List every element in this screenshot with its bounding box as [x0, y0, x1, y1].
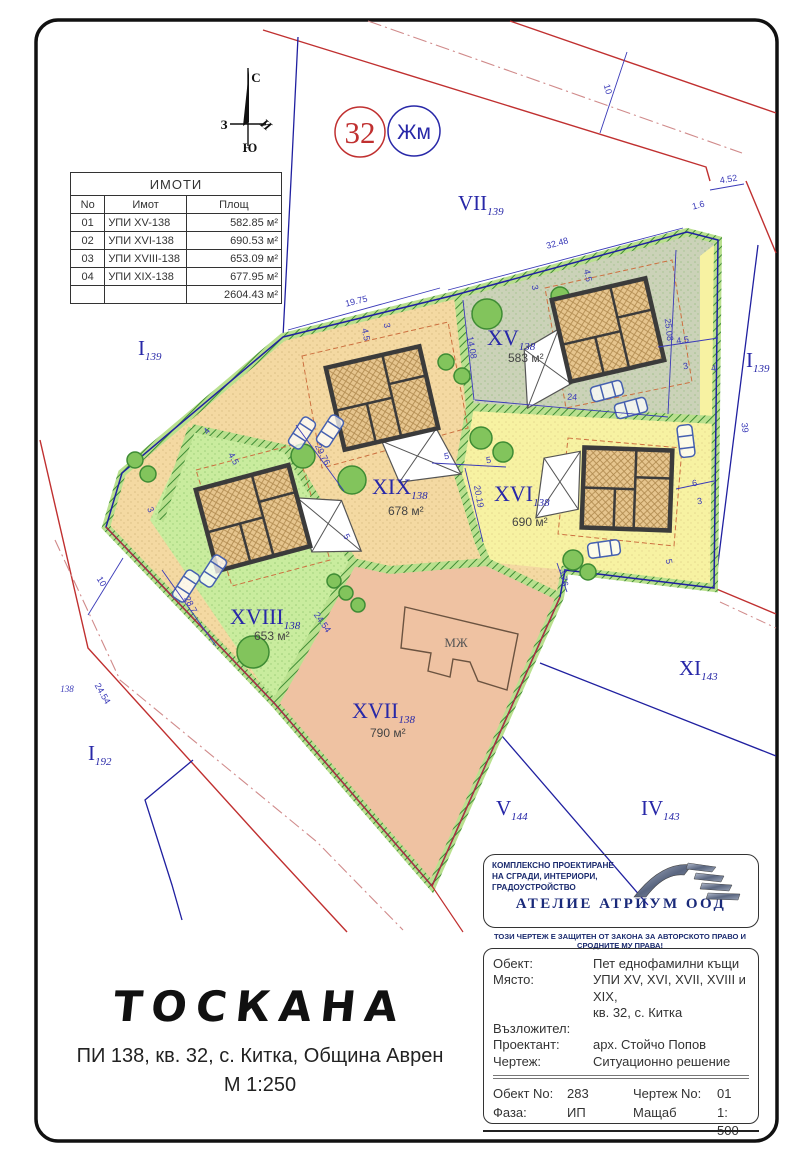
- compass-west-label: З: [221, 117, 228, 132]
- imoti-cell: УПИ XV-138: [105, 214, 186, 232]
- imoti-cell: 01: [71, 214, 105, 232]
- dimension-label: 10: [95, 575, 109, 589]
- compass-needle-icon: [243, 70, 249, 126]
- field-value: арх. Стойчо Попов: [593, 1037, 749, 1053]
- field-value: Пет еднофамилни къщи: [593, 956, 749, 972]
- company-logo-icon: [630, 859, 750, 901]
- field-label: Място:: [493, 972, 593, 1021]
- project-title: ТОСКАНА: [72, 982, 447, 1031]
- signature-line: [483, 1130, 759, 1132]
- imoti-header: Имот: [105, 196, 186, 214]
- parcel-area-label: 678 м²: [388, 504, 424, 518]
- imoti-header: Площ: [186, 196, 281, 214]
- dimension-label: 24.54: [93, 681, 113, 706]
- dimension-label: 4.52: [719, 173, 738, 186]
- footer-left: ТОСКАНА ПИ 138, кв. 32, с. Китка, Община…: [75, 982, 445, 1097]
- imoti-row: 03УПИ XVIII-138653.09 м²: [71, 250, 282, 268]
- zone-label: Жм: [397, 121, 431, 144]
- dimension-label: 138: [60, 684, 74, 694]
- neighbor-parcel-label: I139: [138, 336, 162, 363]
- title-block: Обект:Пет еднофамилни къщи Място:УПИ XV,…: [483, 948, 759, 1124]
- imoti-cell: 677.95 м²: [186, 268, 281, 286]
- compass: С З Ю И: [221, 68, 276, 155]
- field-value: [593, 1021, 749, 1037]
- imoti-title: ИМОТИ: [71, 173, 282, 196]
- field-value: УПИ XV, XVI, XVII, XVIII и XIX,: [593, 972, 746, 1003]
- compass-south-label: Ю: [243, 140, 258, 155]
- dimension-label: 4.5: [582, 268, 594, 282]
- field-label: Чертеж:: [493, 1054, 593, 1070]
- dimension-label: 4.5: [360, 327, 372, 341]
- imoti-cell: УПИ XVIII-138: [105, 250, 186, 268]
- field-label: Фаза:: [493, 1104, 567, 1142]
- imoti-cell: 582.85 м²: [186, 214, 281, 232]
- dimension-label: 10: [602, 83, 614, 95]
- zone-badge[interactable]: Жм: [388, 106, 440, 156]
- field-label: Чертеж No:: [633, 1085, 717, 1104]
- field-label: Мащаб: [633, 1104, 717, 1142]
- field-label: Обект:: [493, 956, 593, 972]
- imoti-cell: 03: [71, 250, 105, 268]
- field-label: Проектант:: [493, 1037, 593, 1053]
- field-value: 1: 500: [717, 1104, 749, 1142]
- imoti-cell: 653.09 м²: [186, 250, 281, 268]
- imoti-header: No: [71, 196, 105, 214]
- parcel-area-label: 653 м²: [254, 629, 290, 643]
- neighbor-parcel-label: VII139: [458, 191, 504, 218]
- company-box: КОМПЛЕКСНО ПРОЕКТИРАНЕ НА СГРАДИ, ИНТЕРИ…: [483, 854, 759, 928]
- parcel-area-label: 790 м²: [370, 726, 406, 740]
- dimension-label: 39: [739, 422, 750, 433]
- neighbor-parcel-label: XI143: [679, 656, 718, 683]
- dimension-label: 4.5: [676, 334, 690, 346]
- parcel-area-label: 690 м²: [512, 515, 548, 529]
- imoti-row: 04УПИ XIX-138677.95 м²: [71, 268, 282, 286]
- imoti-cell: 04: [71, 268, 105, 286]
- field-value: Ситуационно решение: [593, 1054, 749, 1070]
- divider: [493, 1075, 749, 1079]
- dimension-label: 24: [567, 392, 578, 403]
- compass-north-label: С: [251, 70, 260, 85]
- building-mj-label: МЖ: [444, 635, 468, 650]
- field-label: Възложител:: [493, 1021, 593, 1037]
- project-scale: М 1:250: [75, 1074, 445, 1097]
- neighbor-parcel-label: I139: [746, 348, 770, 375]
- dimension-label: 19.75: [344, 294, 368, 309]
- drawing-sheet: МЖ С З Ю И: [0, 0, 800, 1155]
- neighbor-parcel-label: IV143: [641, 796, 680, 823]
- dimension-label: 32.48: [545, 235, 569, 250]
- compass-east-label: И: [257, 115, 276, 134]
- imoti-total: 2604.43 м²: [186, 286, 281, 304]
- field-value: 01: [717, 1085, 749, 1104]
- imoti-cell: 690.53 м²: [186, 232, 281, 250]
- block-number-badge[interactable]: 32: [335, 107, 385, 157]
- imoti-table: ИМОТИNoИмотПлощ01УПИ XV-138582.85 м²02УП…: [70, 172, 282, 304]
- parcel-area-label: 583 м²: [508, 351, 544, 365]
- field-value: 283: [567, 1085, 633, 1104]
- imoti-cell: 02: [71, 232, 105, 250]
- imoti-cell: УПИ XVI-138: [105, 232, 186, 250]
- imoti-row: 02УПИ XVI-138690.53 м²: [71, 232, 282, 250]
- field-value: кв. 32, с. Китка: [593, 1005, 682, 1020]
- field-value: ИП: [567, 1104, 633, 1142]
- imoti-cell: УПИ XIX-138: [105, 268, 186, 286]
- dimension-label: 1.6: [691, 199, 706, 212]
- field-label: Обект No:: [493, 1085, 567, 1104]
- imoti-row: 01УПИ XV-138582.85 м²: [71, 214, 282, 232]
- neighbor-parcel-label: I192: [88, 741, 112, 768]
- project-location: ПИ 138, кв. 32, с. Китка, Община Аврен: [75, 1045, 445, 1068]
- block-number-label: 32: [345, 115, 376, 150]
- neighbor-parcel-label: V144: [496, 796, 528, 823]
